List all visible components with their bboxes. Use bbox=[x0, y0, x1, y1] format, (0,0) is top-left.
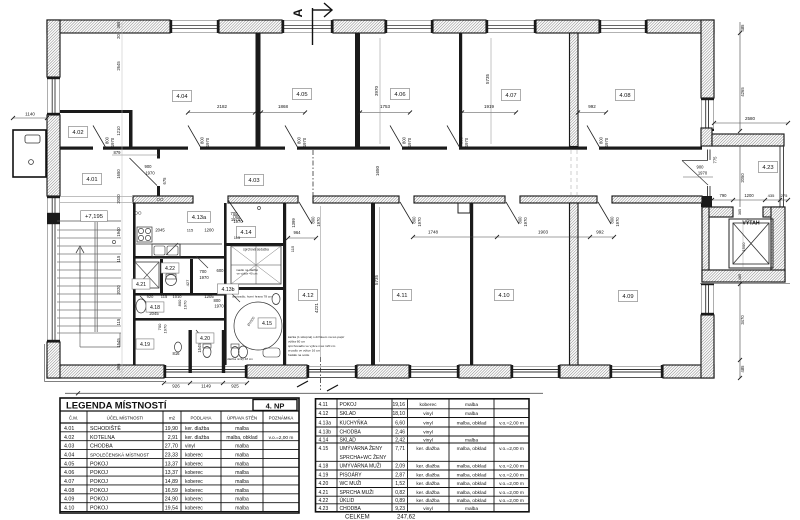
svg-text:14,89: 14,89 bbox=[165, 479, 178, 485]
svg-text:6,60: 6,60 bbox=[395, 420, 405, 426]
svg-text:SPOLEČENSKÁ MÍSTNOST: SPOLEČENSKÁ MÍSTNOST bbox=[90, 451, 149, 457]
svg-text:LEGENDA MÍSTNOSTÍ: LEGENDA MÍSTNOSTÍ bbox=[66, 401, 167, 412]
svg-text:vinyl: vinyl bbox=[423, 430, 433, 436]
svg-text:4.14: 4.14 bbox=[319, 438, 329, 444]
svg-text:4.04: 4.04 bbox=[176, 94, 188, 100]
svg-text:koberec: koberec bbox=[185, 488, 203, 494]
svg-text:UMÝVÁRNA MUŽI: UMÝVÁRNA MUŽI bbox=[340, 462, 382, 470]
svg-text:1940: 1940 bbox=[116, 227, 121, 237]
svg-text:SPRCHA+WC ŽENY: SPRCHA+WC ŽENY bbox=[340, 453, 387, 461]
svg-text:koberec: koberec bbox=[185, 479, 203, 485]
svg-text:1970: 1970 bbox=[214, 304, 224, 309]
svg-text:1970: 1970 bbox=[205, 137, 210, 147]
svg-text:800: 800 bbox=[297, 136, 302, 144]
svg-text:16,59: 16,59 bbox=[165, 488, 178, 494]
svg-text:675: 675 bbox=[162, 177, 167, 185]
svg-text:v.o.=2,00 m: v.o.=2,00 m bbox=[499, 472, 524, 478]
svg-text:OO: OO bbox=[156, 197, 164, 202]
svg-text:1970: 1970 bbox=[604, 137, 609, 147]
svg-text:4.01: 4.01 bbox=[86, 177, 97, 183]
svg-text:ker. dlažba: ker. dlažba bbox=[416, 490, 440, 496]
svg-text:4.20: 4.20 bbox=[200, 336, 210, 342]
svg-text:1970: 1970 bbox=[163, 324, 168, 334]
svg-text:435: 435 bbox=[768, 193, 775, 198]
svg-text:800: 800 bbox=[105, 136, 110, 144]
svg-text:4.02: 4.02 bbox=[64, 435, 74, 441]
svg-text:4.15: 4.15 bbox=[319, 446, 329, 452]
svg-text:2,09: 2,09 bbox=[395, 464, 405, 470]
svg-text:115: 115 bbox=[161, 294, 168, 299]
svg-text:malba: malba bbox=[465, 411, 478, 417]
svg-text:SPRCHA MUŽI: SPRCHA MUŽI bbox=[340, 488, 374, 496]
svg-text:malba: malba bbox=[235, 479, 249, 485]
svg-text:KOTELNA: KOTELNA bbox=[90, 435, 115, 441]
svg-text:POKOJ: POKOJ bbox=[340, 402, 357, 408]
svg-text:umývadlo, horní hrana 78 cm: umývadlo, horní hrana 78 cm bbox=[232, 295, 272, 299]
svg-text:4.13a: 4.13a bbox=[319, 420, 332, 426]
svg-text:SKLAD: SKLAD bbox=[340, 411, 357, 417]
svg-text:malba: malba bbox=[465, 506, 478, 512]
svg-text:365: 365 bbox=[116, 21, 121, 29]
svg-text:v.o.=2,00 m: v.o.=2,00 m bbox=[499, 481, 524, 487]
svg-text:m2: m2 bbox=[169, 416, 176, 421]
svg-text:24,90: 24,90 bbox=[165, 497, 178, 503]
svg-text:0,82: 0,82 bbox=[395, 490, 405, 496]
svg-text:964: 964 bbox=[294, 230, 302, 235]
svg-text:427: 427 bbox=[185, 279, 190, 286]
svg-text:800: 800 bbox=[311, 216, 316, 224]
svg-text:2,42: 2,42 bbox=[395, 438, 405, 444]
svg-text:POZNÁMKA: POZNÁMKA bbox=[269, 416, 294, 421]
svg-text:1868: 1868 bbox=[278, 104, 289, 109]
svg-text:malba, obklad: malba, obklad bbox=[457, 420, 487, 426]
svg-text:Č.M.: Č.M. bbox=[69, 416, 78, 421]
svg-text:v.o.=2,00 m: v.o.=2,00 m bbox=[499, 498, 524, 504]
svg-text:485: 485 bbox=[740, 365, 745, 373]
svg-text:1970: 1970 bbox=[233, 219, 243, 224]
svg-text:malba, obklad: malba, obklad bbox=[457, 498, 487, 504]
svg-text:4.04: 4.04 bbox=[64, 452, 74, 458]
svg-text:4.10: 4.10 bbox=[64, 506, 74, 512]
svg-text:115: 115 bbox=[116, 255, 121, 262]
svg-text:malba, obklad: malba, obklad bbox=[457, 490, 487, 496]
svg-text:SCHODIŠTĚ: SCHODIŠTĚ bbox=[90, 424, 121, 432]
svg-text:2645: 2645 bbox=[116, 61, 121, 71]
svg-text:9,23: 9,23 bbox=[395, 506, 405, 512]
svg-text:1970: 1970 bbox=[615, 217, 620, 227]
svg-text:CHODBA: CHODBA bbox=[340, 430, 362, 436]
svg-text:800: 800 bbox=[610, 216, 615, 224]
svg-text:4.03: 4.03 bbox=[64, 444, 74, 450]
svg-text:vinyl: vinyl bbox=[423, 411, 433, 417]
svg-text:4.03: 4.03 bbox=[248, 178, 259, 184]
svg-text:4.10: 4.10 bbox=[498, 293, 509, 299]
svg-text:SKLAD: SKLAD bbox=[340, 438, 357, 444]
svg-text:1970: 1970 bbox=[407, 137, 412, 147]
svg-text:malba: malba bbox=[235, 461, 249, 467]
svg-text:ker. dlažba: ker. dlažba bbox=[185, 435, 209, 441]
svg-text:2,91: 2,91 bbox=[168, 435, 178, 441]
svg-text:koberec: koberec bbox=[185, 452, 203, 458]
svg-text:1919: 1919 bbox=[484, 104, 495, 109]
svg-text:v.o.=2,00 m: v.o.=2,00 m bbox=[499, 446, 524, 452]
svg-text:malba: malba bbox=[465, 402, 478, 408]
svg-text:v.o.=2,00 m: v.o.=2,00 m bbox=[269, 435, 294, 441]
svg-text:13,37: 13,37 bbox=[165, 470, 178, 476]
svg-text:27,70: 27,70 bbox=[165, 444, 178, 450]
svg-text:2045: 2045 bbox=[155, 228, 165, 233]
svg-text:992: 992 bbox=[588, 104, 596, 109]
svg-text:ker. dlažba: ker. dlažba bbox=[185, 426, 209, 432]
svg-text:4.11: 4.11 bbox=[397, 293, 408, 299]
svg-text:4.22: 4.22 bbox=[165, 266, 175, 272]
svg-text:800: 800 bbox=[518, 216, 523, 224]
svg-text:2050: 2050 bbox=[740, 173, 745, 183]
svg-text:ker. dlažba: ker. dlažba bbox=[416, 481, 440, 487]
svg-text:600: 600 bbox=[217, 268, 225, 273]
svg-text:800: 800 bbox=[412, 216, 417, 224]
svg-text:2,46: 2,46 bbox=[395, 430, 405, 436]
svg-text:19,54: 19,54 bbox=[165, 506, 178, 512]
svg-text:PISOÁRY: PISOÁRY bbox=[340, 471, 363, 478]
svg-text:ker. dlažba: ker. dlažba bbox=[416, 472, 440, 478]
svg-text:vinyl: vinyl bbox=[185, 444, 195, 450]
svg-text:vinyl: vinyl bbox=[423, 420, 433, 426]
svg-text:malba: malba bbox=[235, 426, 249, 432]
svg-text:4.05: 4.05 bbox=[296, 92, 307, 98]
svg-text:485: 485 bbox=[738, 274, 742, 280]
svg-text:20: 20 bbox=[116, 34, 121, 39]
svg-text:800: 800 bbox=[459, 136, 464, 144]
svg-text:800: 800 bbox=[402, 136, 407, 144]
svg-text:7,71: 7,71 bbox=[395, 446, 405, 452]
svg-text:POKOJ: POKOJ bbox=[90, 497, 108, 503]
svg-text:1500: 1500 bbox=[741, 242, 746, 252]
svg-text:1650: 1650 bbox=[375, 165, 380, 176]
svg-text:816: 816 bbox=[173, 351, 181, 356]
svg-text:4.09: 4.09 bbox=[64, 497, 74, 503]
svg-text:2020: 2020 bbox=[116, 285, 121, 295]
svg-text:4.06: 4.06 bbox=[394, 92, 405, 98]
svg-text:800: 800 bbox=[214, 298, 222, 303]
svg-text:4.21: 4.21 bbox=[136, 282, 146, 288]
svg-text:koberec: koberec bbox=[185, 461, 203, 467]
svg-text:920: 920 bbox=[147, 294, 154, 299]
svg-text:4.06: 4.06 bbox=[64, 470, 74, 476]
svg-text:4.19: 4.19 bbox=[319, 472, 329, 478]
svg-text:malba: malba bbox=[235, 488, 249, 494]
svg-text:vinyl: vinyl bbox=[423, 506, 433, 512]
svg-text:900: 900 bbox=[145, 164, 153, 169]
svg-text:sprchovadlo ve výšce max 120 c: sprchovadlo ve výšce max 120 cm bbox=[288, 344, 336, 348]
svg-text:malba, obklad: malba, obklad bbox=[457, 481, 487, 487]
svg-text:1970: 1970 bbox=[523, 217, 528, 227]
svg-text:4.18: 4.18 bbox=[319, 464, 329, 470]
svg-text:sprchová sedačka: sprchová sedačka bbox=[243, 248, 269, 252]
svg-text:1970: 1970 bbox=[302, 137, 307, 147]
svg-text:700: 700 bbox=[157, 323, 162, 330]
svg-text:365: 365 bbox=[738, 209, 742, 215]
svg-text:2045: 2045 bbox=[149, 311, 159, 316]
svg-text:malba, obklad: malba, obklad bbox=[457, 472, 487, 478]
svg-text:790: 790 bbox=[720, 193, 728, 198]
svg-text:900: 900 bbox=[697, 165, 705, 170]
svg-text:1970: 1970 bbox=[464, 137, 469, 147]
svg-text:4.21: 4.21 bbox=[319, 490, 329, 496]
svg-text:18,10: 18,10 bbox=[392, 411, 405, 417]
svg-text:1140: 1140 bbox=[25, 112, 35, 117]
svg-text:2182: 2182 bbox=[217, 104, 228, 109]
svg-text:4.02: 4.02 bbox=[72, 130, 83, 136]
svg-text:2000: 2000 bbox=[116, 194, 121, 204]
svg-text:v.o.=2,00 m: v.o.=2,00 m bbox=[499, 420, 524, 426]
svg-text:2,87: 2,87 bbox=[395, 472, 405, 478]
svg-text:KUCHYŇKA: KUCHYŇKA bbox=[340, 419, 368, 426]
svg-text:1970: 1970 bbox=[199, 275, 209, 280]
svg-text:POKOJ: POKOJ bbox=[90, 470, 108, 476]
svg-text:1903: 1903 bbox=[538, 230, 549, 235]
svg-text:3470: 3470 bbox=[740, 315, 745, 325]
svg-text:1970: 1970 bbox=[183, 300, 188, 310]
svg-text:19,90: 19,90 bbox=[165, 426, 178, 432]
svg-text:4.07: 4.07 bbox=[505, 93, 516, 99]
svg-text:1970: 1970 bbox=[110, 137, 115, 147]
svg-text:zrcadlo ve výšce 16 cm: zrcadlo ve výšce 16 cm bbox=[288, 349, 321, 353]
svg-text:malba: malba bbox=[235, 497, 249, 503]
svg-text:4.15: 4.15 bbox=[262, 321, 272, 327]
svg-text:4.20: 4.20 bbox=[319, 481, 329, 487]
svg-text:v.o.=2,00 m: v.o.=2,00 m bbox=[499, 464, 524, 470]
svg-text:WC MUŽI: WC MUŽI bbox=[340, 479, 362, 487]
svg-text:4.22: 4.22 bbox=[319, 498, 329, 504]
svg-text:1210: 1210 bbox=[116, 126, 121, 136]
svg-text:4.12: 4.12 bbox=[319, 411, 329, 417]
svg-text:992: 992 bbox=[596, 230, 604, 235]
svg-text:malba: malba bbox=[465, 438, 478, 444]
svg-text:1753: 1753 bbox=[380, 104, 391, 109]
svg-text:2580: 2580 bbox=[745, 116, 756, 121]
svg-text:kačka (1 sklopná) s držákem na: kačka (1 sklopná) s držákem na wc-papír bbox=[288, 335, 344, 339]
svg-text:19,16: 19,16 bbox=[392, 402, 405, 408]
svg-text:23,33: 23,33 bbox=[165, 452, 178, 458]
svg-text:malba: malba bbox=[235, 444, 249, 450]
svg-text:800: 800 bbox=[599, 136, 604, 144]
svg-text:UMÝVÁRNA ŽENY: UMÝVÁRNA ŽENY bbox=[340, 444, 383, 452]
svg-text:malba: malba bbox=[235, 470, 249, 476]
svg-text:ÚČEL MÍSTNOSTI: ÚČEL MÍSTNOSTI bbox=[107, 416, 144, 421]
svg-text:ÚKLID: ÚKLID bbox=[340, 497, 355, 504]
svg-text:4.19: 4.19 bbox=[140, 342, 150, 348]
svg-text:4265: 4265 bbox=[740, 87, 745, 97]
svg-text:4.09: 4.09 bbox=[622, 294, 633, 300]
svg-text:926: 926 bbox=[172, 384, 180, 389]
svg-text:700: 700 bbox=[200, 269, 208, 274]
svg-text:+7,195: +7,195 bbox=[85, 214, 103, 220]
svg-text:1545: 1545 bbox=[197, 343, 202, 353]
svg-text:1,52: 1,52 bbox=[395, 481, 405, 487]
svg-text:4. NP: 4. NP bbox=[266, 401, 285, 410]
svg-text:vinyl: vinyl bbox=[423, 438, 433, 444]
svg-text:4.08: 4.08 bbox=[619, 93, 630, 99]
svg-text:4.05: 4.05 bbox=[64, 461, 74, 467]
svg-text:5735: 5735 bbox=[374, 274, 379, 285]
svg-text:malba, obklad: malba, obklad bbox=[226, 435, 257, 441]
svg-text:malba, obklad: malba, obklad bbox=[457, 446, 487, 452]
svg-text:115: 115 bbox=[234, 235, 241, 240]
svg-text:4.23: 4.23 bbox=[319, 506, 329, 512]
svg-text:1010: 1010 bbox=[173, 294, 183, 299]
svg-text:13,37: 13,37 bbox=[165, 461, 178, 467]
svg-text:ve výšce 40 cm: ve výšce 40 cm bbox=[237, 272, 258, 276]
svg-text:115: 115 bbox=[290, 245, 295, 252]
svg-text:A: A bbox=[291, 8, 305, 17]
svg-text:365: 365 bbox=[116, 363, 121, 371]
svg-text:4.13b: 4.13b bbox=[222, 287, 235, 293]
svg-text:0,89: 0,89 bbox=[395, 498, 405, 504]
svg-text:malba, obklad: malba, obklad bbox=[457, 464, 487, 470]
svg-text:1970: 1970 bbox=[145, 171, 155, 176]
svg-text:ker. dlažba: ker. dlažba bbox=[416, 446, 440, 452]
svg-text:1399: 1399 bbox=[291, 218, 296, 228]
svg-text:879: 879 bbox=[114, 150, 122, 155]
svg-text:115: 115 bbox=[116, 318, 121, 325]
svg-text:ker. dlažba: ker. dlažba bbox=[416, 498, 440, 504]
svg-text:hašiák na sošle: hašiák na sošle bbox=[288, 353, 310, 357]
svg-text:POKOJ: POKOJ bbox=[90, 461, 108, 467]
svg-text:4.13a: 4.13a bbox=[192, 215, 207, 221]
svg-text:1748: 1748 bbox=[428, 230, 439, 235]
svg-text:1149: 1149 bbox=[201, 384, 211, 389]
svg-text:4.11: 4.11 bbox=[319, 402, 329, 408]
svg-text:4.07: 4.07 bbox=[64, 479, 74, 485]
svg-text:POKOJ: POKOJ bbox=[90, 506, 108, 512]
svg-text:POKOJ: POKOJ bbox=[90, 488, 108, 494]
svg-text:800: 800 bbox=[177, 299, 182, 306]
svg-text:VÝTAH: VÝTAH bbox=[742, 220, 759, 227]
svg-text:PODLAHA: PODLAHA bbox=[191, 416, 212, 421]
svg-text:775: 775 bbox=[713, 156, 718, 164]
svg-text:275: 275 bbox=[781, 193, 788, 198]
svg-text:1545: 1545 bbox=[116, 338, 121, 348]
svg-text:koberec: koberec bbox=[185, 506, 203, 512]
svg-text:485: 485 bbox=[740, 24, 745, 32]
svg-text:malba: malba bbox=[235, 506, 249, 512]
svg-text:925: 925 bbox=[231, 384, 239, 389]
svg-text:4.14: 4.14 bbox=[240, 230, 252, 236]
svg-text:1200: 1200 bbox=[204, 228, 214, 233]
svg-text:výška 60 cm: výška 60 cm bbox=[288, 340, 306, 344]
svg-text:4.18: 4.18 bbox=[150, 305, 160, 311]
svg-text:1650: 1650 bbox=[116, 169, 121, 179]
svg-text:ker. dlažba: ker. dlažba bbox=[416, 464, 440, 470]
svg-text:CHODBA: CHODBA bbox=[90, 444, 113, 450]
svg-text:3970: 3970 bbox=[374, 85, 379, 96]
svg-text:1970: 1970 bbox=[698, 171, 708, 176]
svg-text:CELKEM: CELKEM bbox=[345, 515, 370, 520]
svg-text:1200: 1200 bbox=[744, 193, 754, 198]
svg-text:POKOJ: POKOJ bbox=[90, 479, 108, 485]
svg-text:koberec: koberec bbox=[185, 470, 203, 476]
svg-text:5735: 5735 bbox=[485, 73, 490, 84]
svg-text:4.13b: 4.13b bbox=[319, 430, 332, 436]
svg-text:ÚPRAVA STĚN: ÚPRAVA STĚN bbox=[227, 416, 257, 421]
svg-text:v.o.=2,00 m: v.o.=2,00 m bbox=[499, 490, 524, 496]
svg-text:4.12: 4.12 bbox=[302, 293, 313, 299]
svg-text:4.23: 4.23 bbox=[762, 165, 773, 171]
svg-text:800: 800 bbox=[200, 136, 205, 144]
svg-text:4221: 4221 bbox=[314, 302, 319, 313]
svg-text:CHODBA: CHODBA bbox=[340, 506, 362, 512]
svg-text:OO: OO bbox=[134, 211, 142, 216]
svg-text:dlažba nízký 48 cm: dlažba nízký 48 cm bbox=[227, 357, 253, 361]
svg-text:4.08: 4.08 bbox=[64, 488, 74, 494]
svg-text:247,62: 247,62 bbox=[397, 515, 416, 520]
svg-text:4.01: 4.01 bbox=[64, 426, 74, 432]
svg-text:1970: 1970 bbox=[417, 217, 422, 227]
svg-text:malba: malba bbox=[235, 452, 249, 458]
svg-text:koberec: koberec bbox=[185, 497, 203, 503]
svg-text:koberec: koberec bbox=[419, 402, 437, 408]
svg-text:115: 115 bbox=[187, 228, 194, 233]
